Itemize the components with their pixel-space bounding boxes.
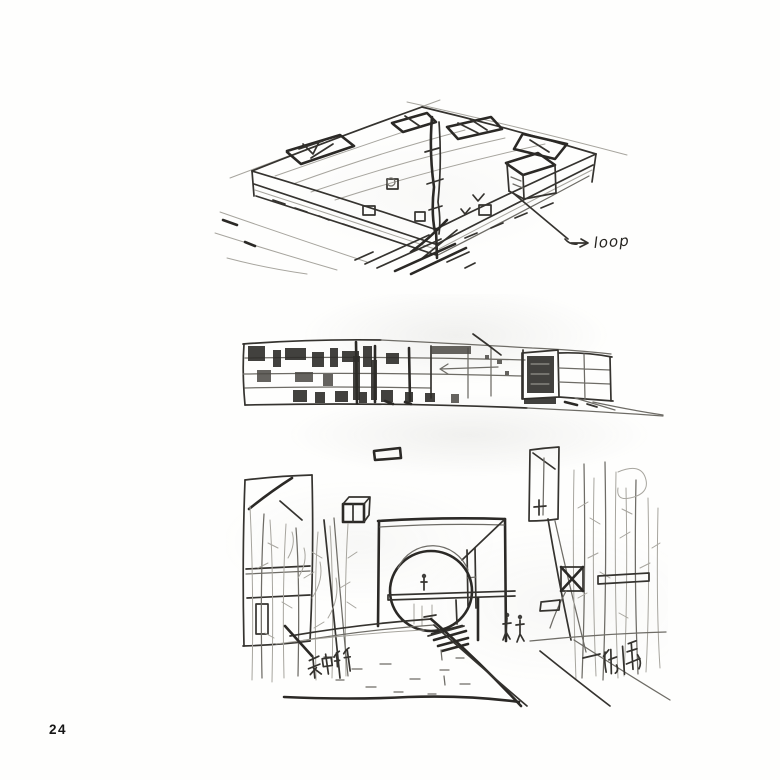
sketch-building-elevation — [235, 298, 667, 428]
left-bamboo-trees — [250, 506, 357, 682]
slab-outline — [252, 107, 596, 258]
loop-leader-arrow — [513, 193, 588, 247]
left-tower — [243, 475, 313, 646]
loop-annotation: loop — [593, 232, 630, 252]
arch-opening — [388, 546, 515, 651]
dark-opening-right — [522, 350, 559, 404]
small-cube — [343, 497, 370, 522]
floating-signboard — [374, 448, 401, 460]
figure-on-bridge — [421, 574, 427, 590]
book-page: loop — [0, 0, 780, 780]
right-tall-slab — [529, 447, 559, 521]
facade-marks — [273, 178, 553, 238]
page-number: 24 — [49, 722, 67, 737]
sketch-gate-plaza-perspective — [228, 428, 672, 706]
steps-annotation — [583, 641, 641, 677]
sketch-aerial-courtyard-building: loop — [215, 92, 645, 277]
small-plaque — [540, 600, 560, 611]
